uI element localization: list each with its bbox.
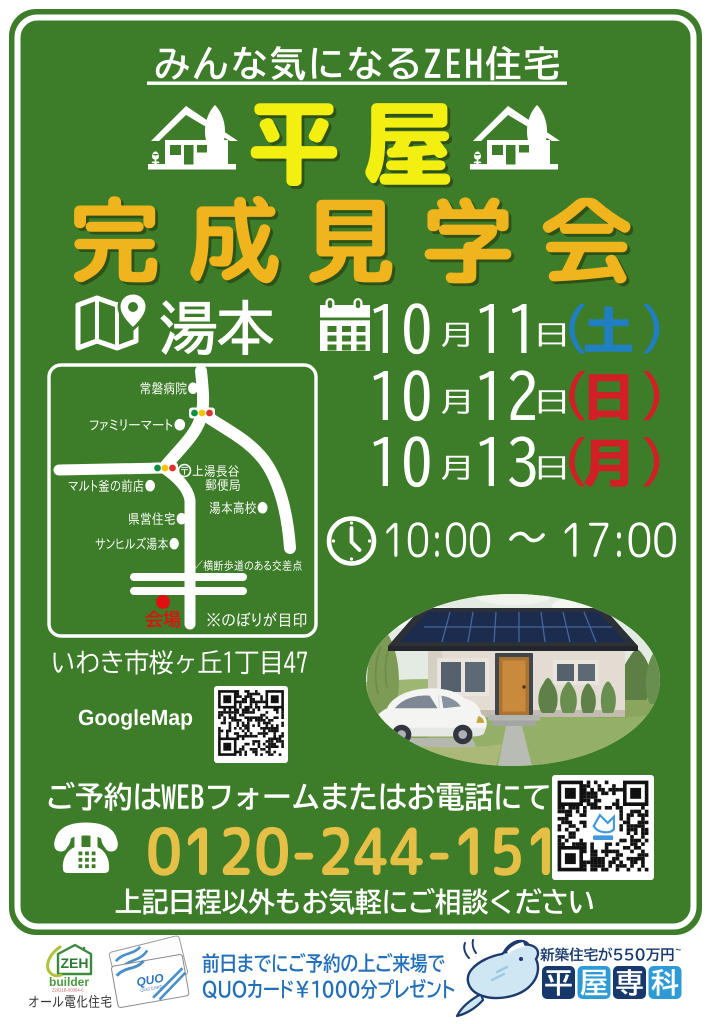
svg-text:ZEH: ZEH — [61, 955, 89, 971]
svg-text:Z2021B-00354-C: Z2021B-00354-C — [52, 988, 84, 993]
